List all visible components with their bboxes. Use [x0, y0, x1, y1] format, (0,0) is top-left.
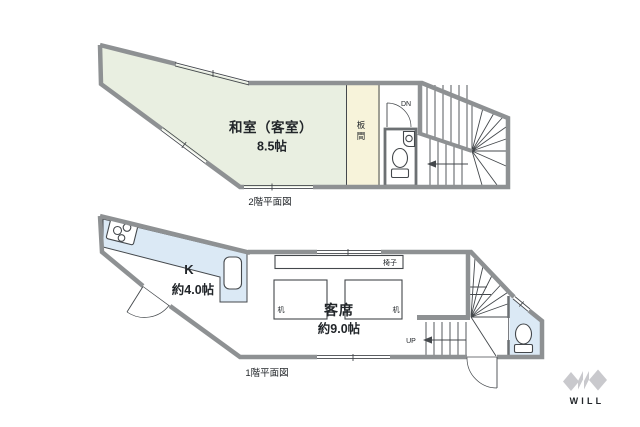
toilet-icon — [515, 324, 533, 353]
floor1-plan: K 約4.0帖 客席 約9.0帖 椅子 机 机 UP 1階平面図 — [100, 216, 542, 388]
itama-label-bottom: 間 — [357, 131, 366, 141]
up-label: UP — [406, 338, 416, 345]
kitchen-label: K — [184, 262, 194, 277]
toilet-icon — [392, 149, 409, 178]
floorplan-image: 和室（客室） 8.5帖 板 間 DN 2階平面図 — [0, 0, 640, 427]
floorplan-page: 和室（客室） 8.5帖 板 間 DN 2階平面図 — [0, 0, 640, 427]
floor1-stair-arrowhead — [423, 336, 432, 343]
corner-sink-icon — [404, 132, 415, 147]
logo-text: WILL — [570, 396, 605, 406]
kitchen-size-label: 約4.0帖 — [172, 282, 215, 297]
toilet-room-1f — [509, 296, 541, 355]
logo-ribbon-2 — [584, 371, 589, 390]
logo-ribbon-1 — [578, 371, 583, 390]
entrance-door-side — [127, 287, 170, 318]
table-right-label: 机 — [393, 305, 400, 314]
kitchen-sink-icon — [224, 257, 242, 289]
washitsu-room-label: 和室（客室） — [229, 119, 313, 135]
washitsu-size-label: 8.5帖 — [257, 139, 287, 154]
dn-label: DN — [401, 101, 411, 108]
floor2-plan: 和室（客室） 8.5帖 板 間 DN 2階平面図 — [100, 45, 508, 208]
floor2-caption: 2階平面図 — [248, 197, 291, 208]
itama-label-top: 板 — [357, 120, 366, 130]
dining-label: 客席 — [323, 302, 354, 318]
entrance-door-bottom — [467, 357, 497, 388]
floor1-caption: 1階平面図 — [245, 368, 288, 379]
floor1-stairs — [417, 253, 508, 356]
table-left-label: 机 — [278, 305, 285, 314]
bench-label: 椅子 — [383, 258, 397, 267]
will-logo: WILL — [563, 370, 607, 407]
logo-diamond-left — [563, 372, 579, 391]
dining-size-label: 約9.0帖 — [318, 321, 361, 336]
logo-diamond-right — [589, 370, 607, 391]
